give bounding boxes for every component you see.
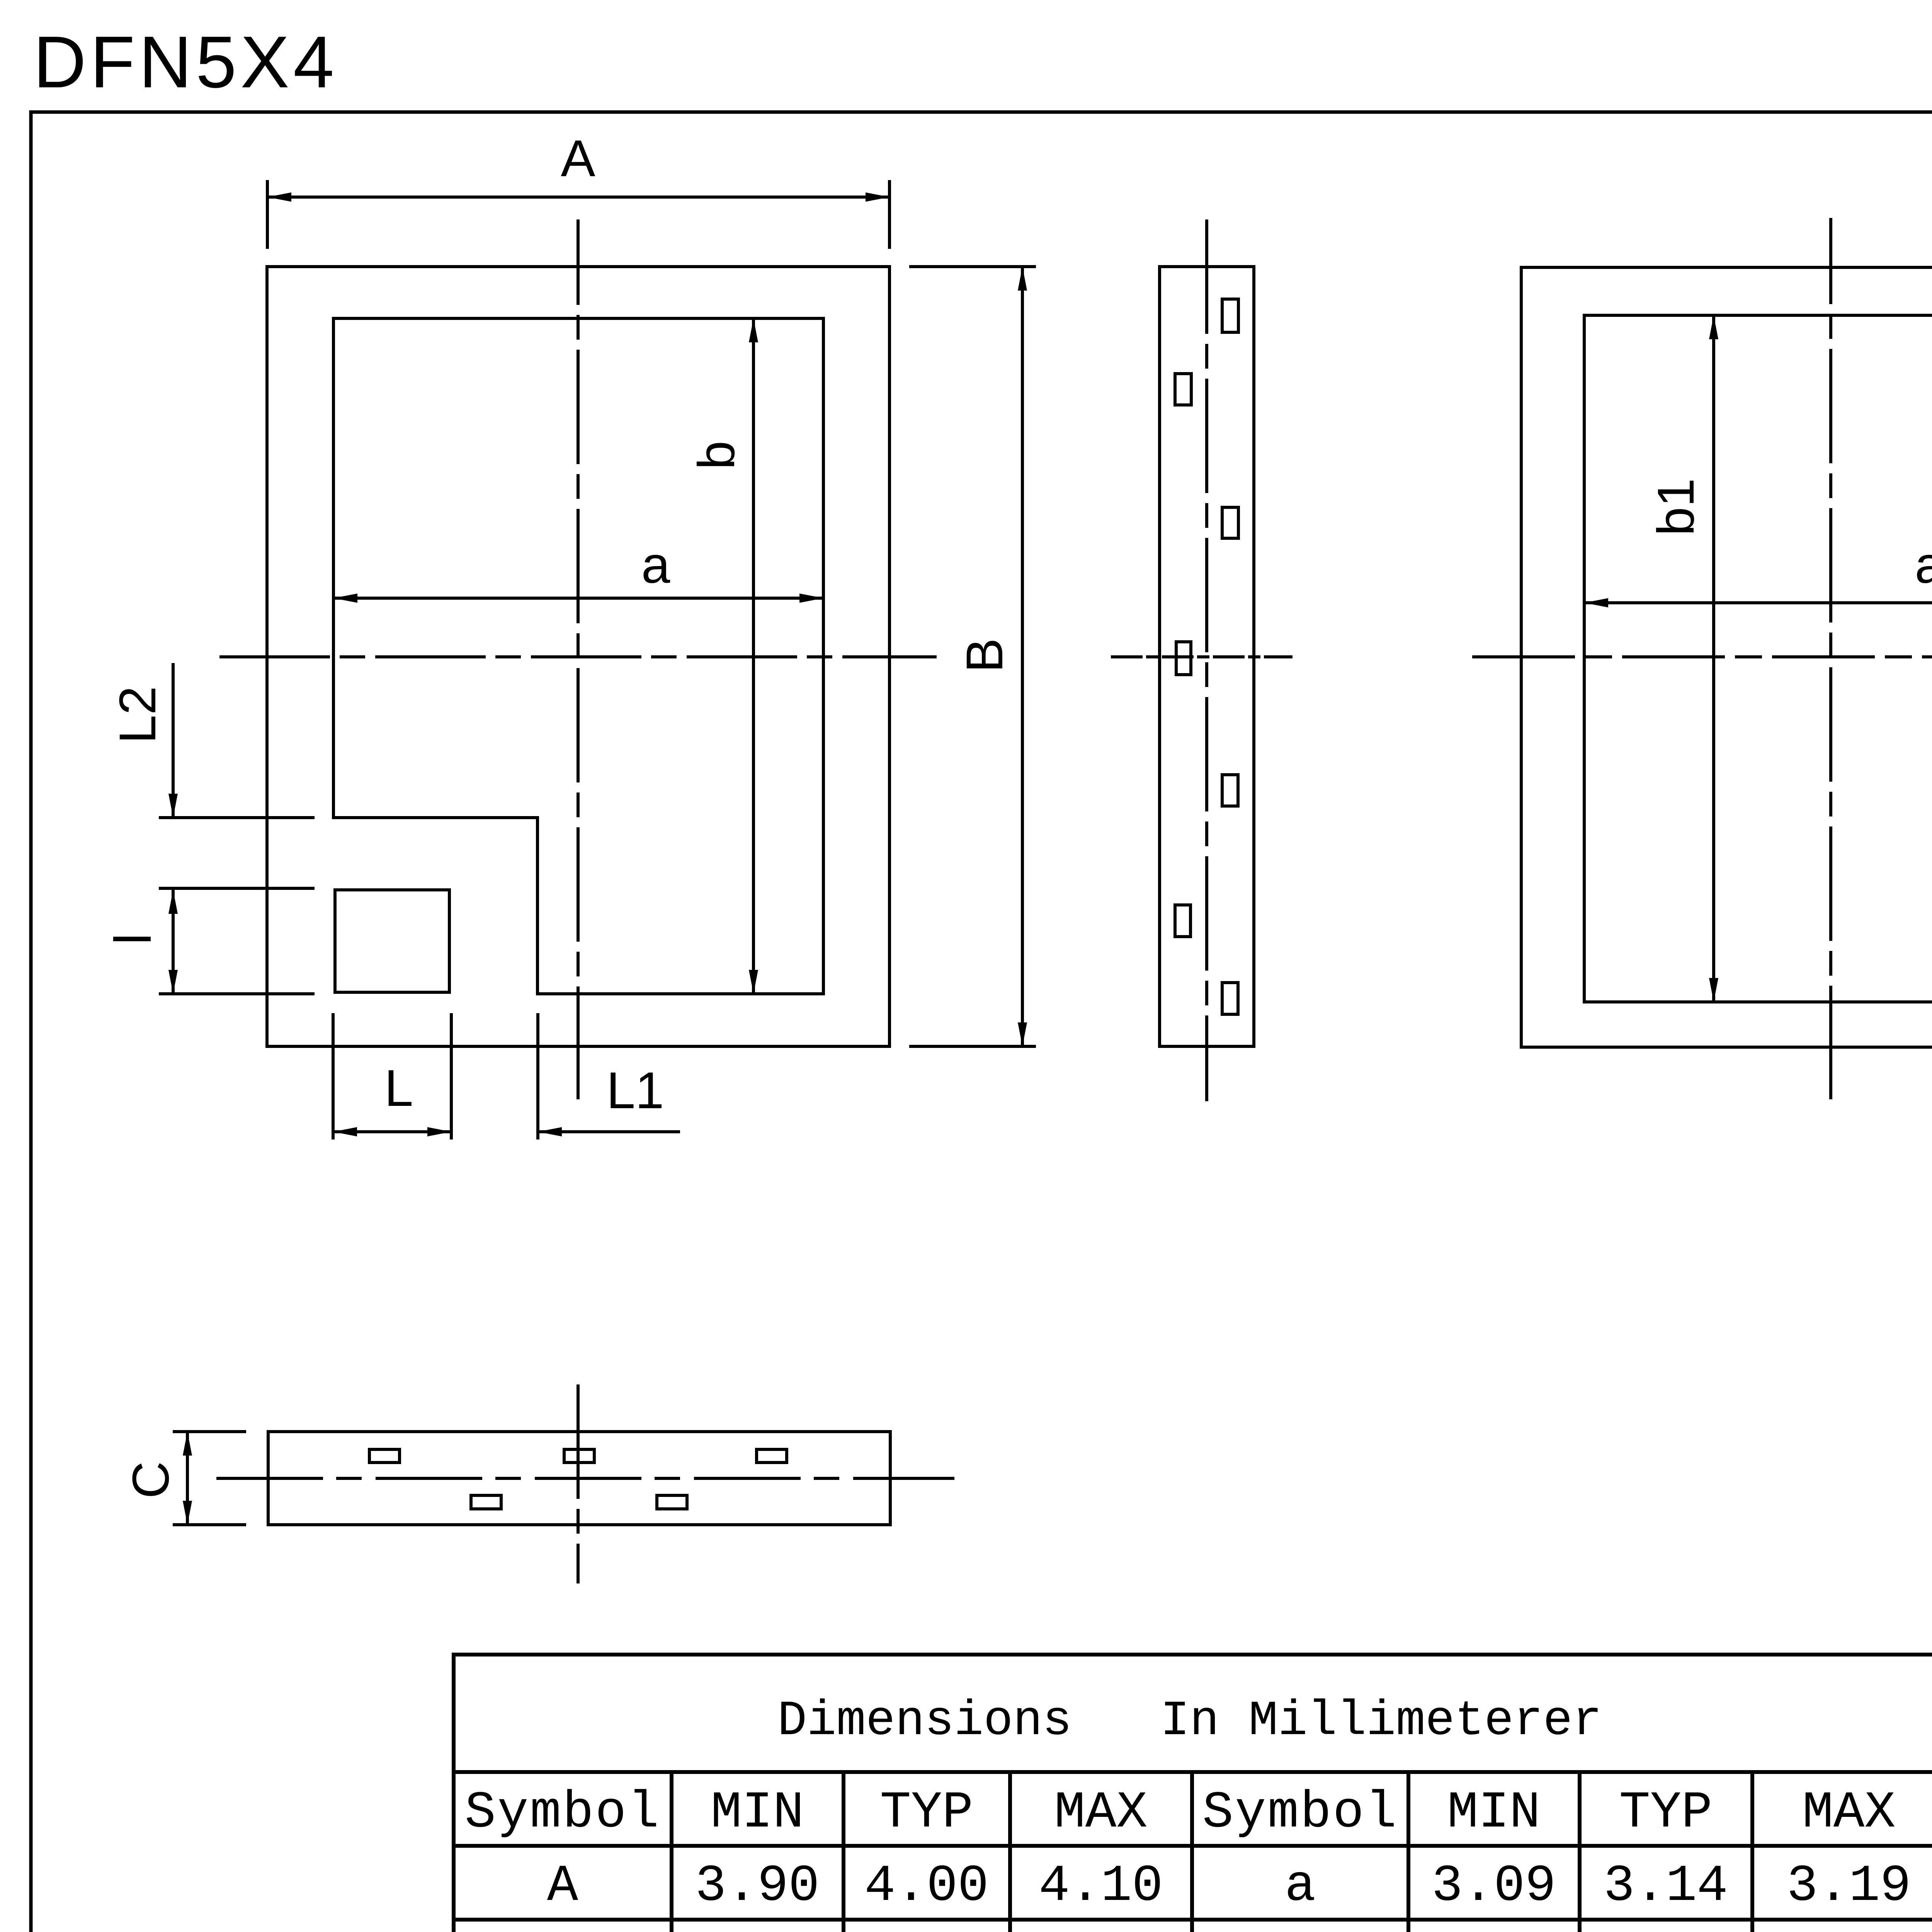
svg-text:MIN: MIN — [1447, 1784, 1540, 1842]
svg-text:Dimensions In Millimeterer: Dimensions In Millimeterer — [777, 1694, 1602, 1749]
svg-text:a1: a1 — [1915, 536, 1932, 594]
svg-text:3.09: 3.09 — [1432, 1857, 1556, 1916]
svg-text:MAX: MAX — [1802, 1784, 1895, 1842]
svg-text:a: a — [641, 536, 670, 594]
svg-text:Symbol: Symbol — [465, 1784, 660, 1842]
svg-text:4.00: 4.00 — [864, 1857, 989, 1916]
svg-text:L: L — [384, 1060, 413, 1117]
svg-text:Symbol: Symbol — [1202, 1784, 1398, 1842]
svg-text:4.10: 4.10 — [1039, 1857, 1163, 1916]
svg-text:C: C — [122, 1461, 180, 1499]
svg-text:3.19: 3.19 — [1787, 1857, 1911, 1916]
svg-text:DFN5X4: DFN5X4 — [33, 21, 338, 103]
svg-text:3.90: 3.90 — [695, 1857, 820, 1916]
svg-text:B: B — [956, 638, 1014, 672]
svg-text:3.14: 3.14 — [1604, 1857, 1728, 1916]
svg-text:MIN: MIN — [711, 1784, 804, 1842]
svg-text:b: b — [688, 441, 745, 470]
svg-text:A: A — [547, 1857, 578, 1916]
svg-text:A: A — [561, 130, 595, 187]
svg-text:MAX: MAX — [1054, 1784, 1147, 1842]
svg-text:L1: L1 — [606, 1062, 664, 1119]
svg-text:L2: L2 — [109, 686, 167, 743]
svg-text:TYP: TYP — [880, 1784, 973, 1842]
svg-text:TYP: TYP — [1619, 1784, 1712, 1842]
svg-text:a: a — [1285, 1857, 1316, 1916]
svg-text:b1: b1 — [1647, 478, 1705, 536]
svg-text:l: l — [104, 933, 162, 945]
